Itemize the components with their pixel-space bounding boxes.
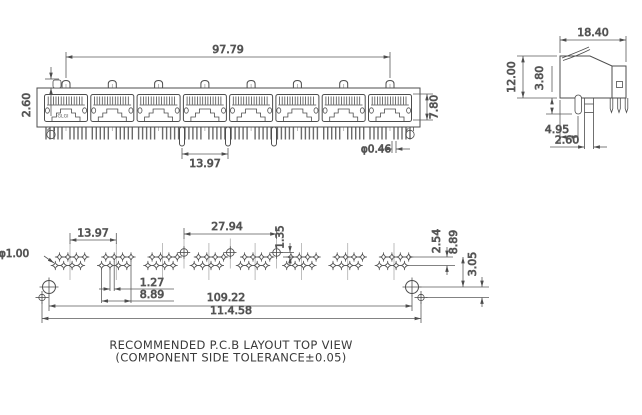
- dim-front-pin-diameter: φ0.46: [361, 141, 410, 156]
- housing-profile: [560, 56, 626, 98]
- dim-label: φ1.00: [0, 248, 29, 260]
- pin-hole-clusters: [51, 239, 414, 281]
- pin-cluster: [236, 243, 275, 280]
- solder-pins: [46, 127, 414, 146]
- dim-label: 2.54: [430, 229, 443, 254]
- dim-label: 2.60: [20, 93, 33, 118]
- dim-label: 97.79: [212, 43, 244, 56]
- pin-cluster: [51, 243, 90, 280]
- center-legs: [585, 98, 594, 149]
- pin-cluster: [375, 243, 414, 280]
- side-pins: [610, 98, 628, 113]
- dim-front-width: 97.79: [66, 43, 390, 78]
- shield-spring-tab: [53, 80, 61, 88]
- pin-cluster: [282, 243, 321, 280]
- dim-label: 8.89: [447, 230, 460, 255]
- dim-pcb-small-hole-span: 11.4.58: [42, 302, 421, 323]
- dim-label: 109.22: [207, 291, 246, 304]
- plastic-post: [272, 127, 277, 146]
- plastic-post: [180, 127, 185, 146]
- dim-pcb-post-span: 27.94: [184, 220, 277, 239]
- post-hole: [178, 239, 190, 269]
- dim-label: 12.00: [505, 61, 518, 93]
- post-hole: [224, 239, 236, 269]
- dim-label: 3.80: [533, 66, 546, 91]
- dim-label: 13.97: [189, 157, 221, 170]
- pcb-caption-line2: (COMPONENT SIDE TOLERANCE±0.05): [115, 351, 346, 365]
- dim-label: 1.35: [275, 225, 287, 248]
- pcb-layout-view: φ1.00 13.97 27.94 1.35: [0, 220, 489, 365]
- side-post: [575, 95, 582, 114]
- plastic-post: [226, 127, 231, 146]
- pin-cluster: [97, 243, 136, 280]
- mounting-hole: [403, 278, 422, 297]
- front-view: GLGI 97.79 2.60: [20, 43, 441, 170]
- dim-pcb-hole-diameter: φ1.00: [0, 248, 54, 263]
- dim-label: 13.97: [77, 227, 109, 240]
- pin-cluster: [143, 243, 182, 280]
- pin-cluster: [190, 243, 229, 280]
- dim-label: 11.4.58: [210, 304, 252, 317]
- dim-label: 2.60: [555, 134, 580, 147]
- top-mounting-tabs: [53, 80, 394, 88]
- dim-label: 27.94: [211, 220, 243, 233]
- dim-label: 18.40: [577, 26, 609, 39]
- dim-label: 3.05: [466, 252, 479, 277]
- dim-label: φ0.46: [361, 144, 392, 156]
- engineering-drawing-page: GLGI 97.79 2.60: [0, 0, 642, 415]
- pin-cluster: [328, 243, 367, 280]
- dim-label: 7.80: [428, 95, 441, 120]
- rj45-connector-drawing: GLGI 97.79 2.60: [0, 0, 642, 415]
- side-view: 18.40 12.00 3.80 4.95 2.60: [505, 26, 628, 149]
- dim-pcb-group-pitch: 13.97: [70, 227, 116, 245]
- dim-side-leg-pitch: 2.60: [550, 134, 607, 148]
- dim-side-height: 12.00: [505, 56, 557, 98]
- brand-logo: GLGI: [57, 114, 68, 120]
- dim-front-post-pitch: 13.97: [182, 148, 228, 170]
- dim-label: 8.89: [140, 288, 165, 301]
